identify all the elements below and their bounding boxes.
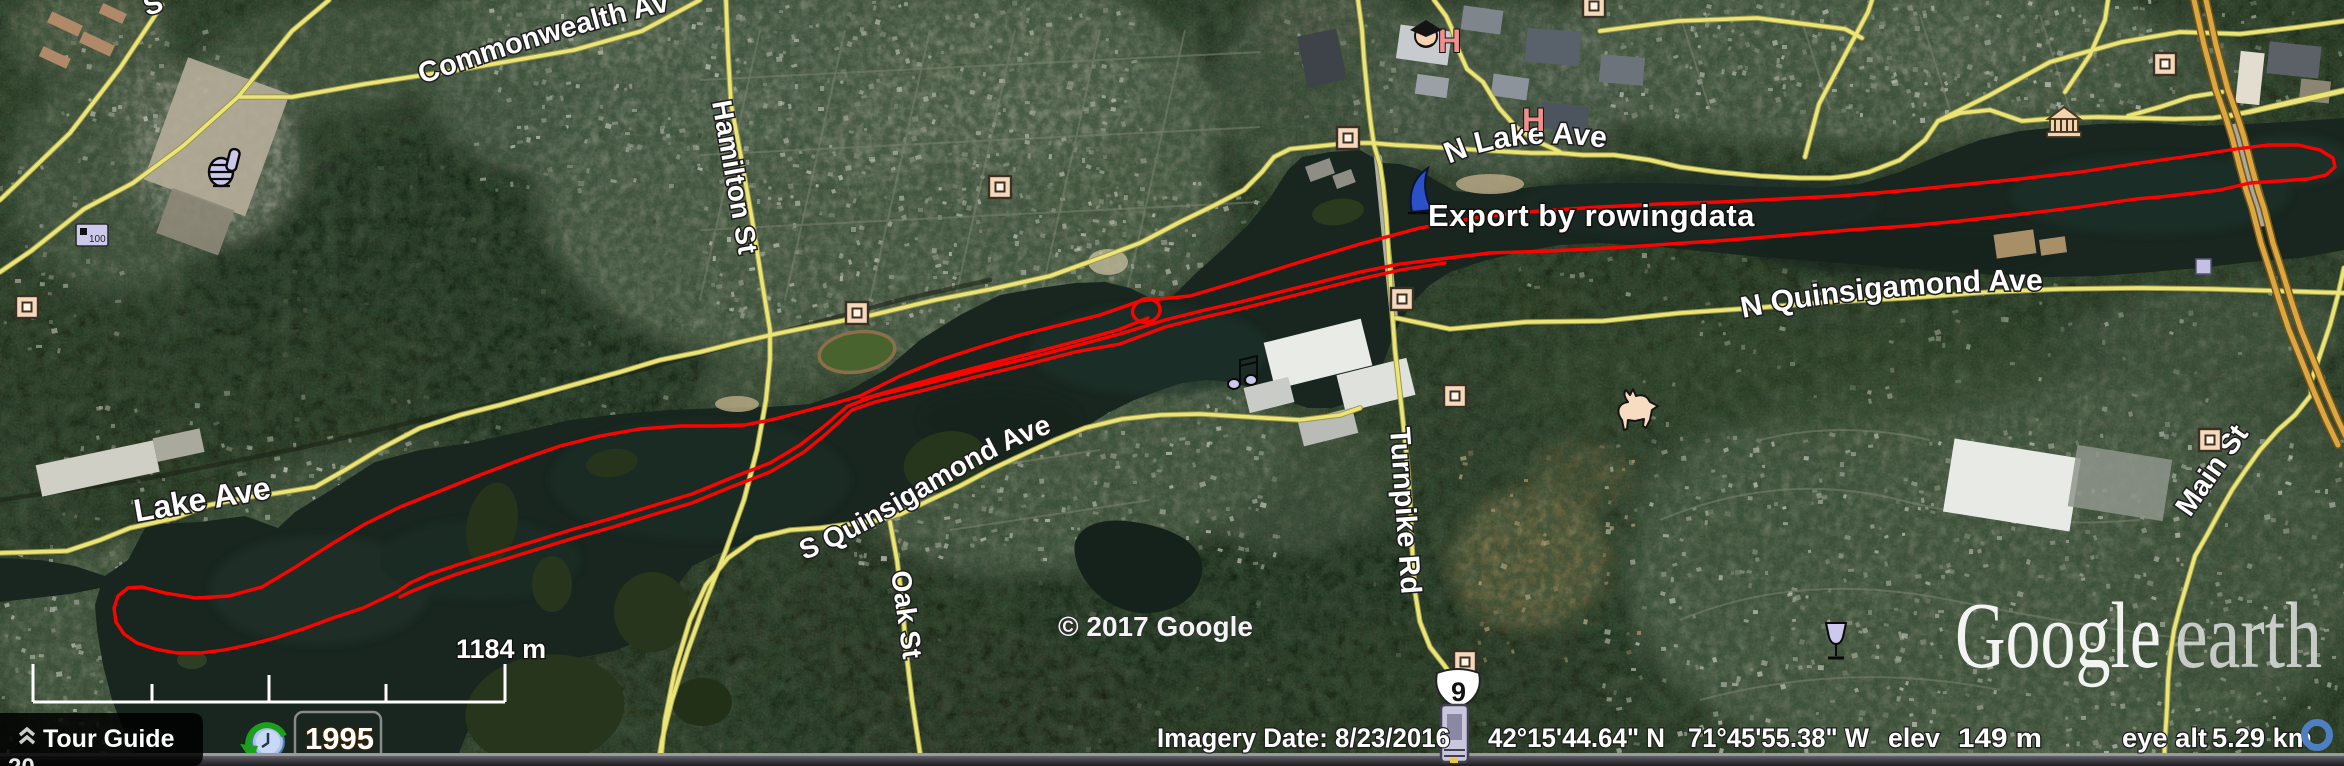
svg-text:© 2017 Google: © 2017 Google (1058, 611, 1253, 642)
svg-text:Google: Google (1955, 584, 2161, 688)
svg-text:Imagery Date: 8/23/2016: Imagery Date: 8/23/2016 (1157, 723, 1450, 753)
svg-text:1995: 1995 (305, 721, 374, 756)
svg-text:earth: earth (2175, 584, 2322, 688)
svg-text:H: H (1522, 102, 1545, 138)
svg-text:149 m: 149 m (1958, 723, 2042, 753)
svg-text:20: 20 (8, 754, 35, 766)
svg-text:9: 9 (1451, 677, 1466, 707)
svg-text:1184 m: 1184 m (456, 634, 546, 664)
svg-text:eye alt: eye alt (2122, 723, 2207, 753)
svg-text:42°15'44.64" N: 42°15'44.64" N (1488, 723, 1665, 753)
svg-text:71°45'55.38" W: 71°45'55.38" W (1688, 723, 1869, 753)
svg-text:elev: elev (1888, 723, 1940, 753)
svg-text:100: 100 (89, 234, 106, 245)
svg-text:Tour Guide: Tour Guide (43, 725, 175, 753)
svg-text:5.29 km: 5.29 km (2212, 723, 2312, 753)
svg-text:H: H (1438, 23, 1461, 59)
svg-text:Export by rowingdata: Export by rowingdata (1428, 198, 1755, 233)
